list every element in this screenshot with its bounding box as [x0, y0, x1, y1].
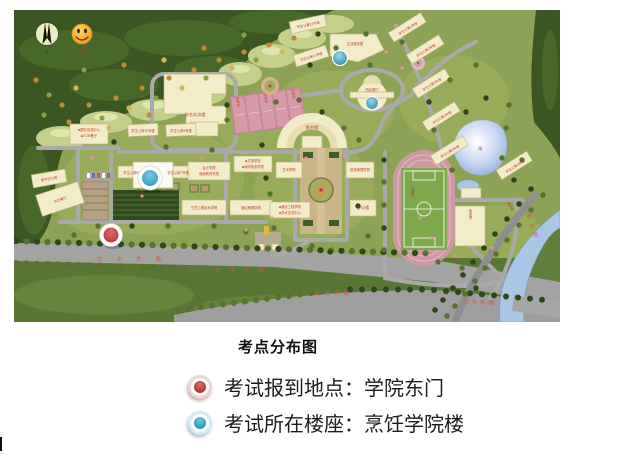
bus — [264, 226, 269, 235]
edge-artifact — [0, 437, 2, 451]
svg-text:正门: 正门 — [264, 247, 271, 252]
svg-text:■学术交流中心: ■学术交流中心 — [279, 210, 301, 215]
svg-text:■酒店工程学院: ■酒店工程学院 — [279, 204, 301, 209]
svg-text:旅游管理学院: 旅游管理学院 — [350, 167, 370, 172]
svg-text:N: N — [45, 49, 48, 54]
campus-map: 网球场 网球场 网球场 — [14, 10, 560, 322]
svg-text:学生公寓10号楼: 学生公寓10号楼 — [131, 128, 155, 133]
svg-text:体育馆: 体育馆 — [468, 208, 472, 220]
legend-title: 考点分布图 — [238, 336, 318, 357]
svg-text:综合实训楼: 综合实训楼 — [185, 111, 206, 118]
svg-text:酒店管理学院: 酒店管理学院 — [241, 205, 261, 210]
planting-field — [113, 190, 179, 220]
legend-row-checkin: 考试报到地点：学院东门 — [188, 372, 444, 401]
svg-text:生活服务楼: 生活服务楼 — [347, 41, 364, 46]
parking-lot — [82, 182, 108, 220]
svg-text:图书馆: 图书馆 — [306, 124, 319, 131]
svg-text:继续教育学院: 继续教育学院 — [199, 171, 219, 176]
svg-text:湖: 湖 — [478, 145, 482, 152]
svg-text:运动场: 运动场 — [410, 186, 414, 198]
legend-exam-building-marker-icon — [188, 411, 212, 435]
svg-text:办公楼: 办公楼 — [357, 204, 370, 211]
flower-circle — [261, 77, 279, 95]
gym-apron — [461, 188, 481, 198]
car-strip — [85, 171, 115, 181]
central-plaza — [300, 148, 342, 234]
svg-text:九水东路: 九水东路 — [315, 289, 353, 297]
svg-text:■休闲旅游学院: ■休闲旅游学院 — [242, 164, 264, 169]
stadium — [393, 150, 455, 266]
building-accounting — [188, 162, 230, 180]
legend-exam-building-label: 考试所在楼座：烹饪学院楼 — [224, 408, 464, 437]
legend-checkin-label: 考试报到地点：学院东门 — [224, 372, 444, 401]
legend-row-exam-building: 考试所在楼座：烹饪学院楼 — [188, 408, 464, 437]
svg-text:■文旅学院: ■文旅学院 — [245, 158, 261, 163]
campus-map-svg: 网球场 网球场 网球场 — [14, 10, 560, 322]
svg-text:学生公寓9号楼: 学生公寓9号楼 — [170, 128, 192, 133]
svg-text:所在位置: 所在位置 — [75, 48, 89, 53]
svg-text:会计学院: 会计学院 — [202, 165, 216, 170]
svg-text:学生公寓7号楼: 学生公寓7号楼 — [167, 170, 189, 175]
page: 网球场 网球场 网球场 — [0, 0, 622, 455]
svg-text:■COM餐厅: ■COM餐厅 — [81, 133, 98, 138]
svg-text:烹饪工程技术学院: 烹饪工程技术学院 — [191, 205, 218, 210]
legend-checkin-marker-icon — [188, 375, 212, 399]
svg-text:■国际交流中心: ■国际交流中心 — [78, 127, 100, 132]
svg-text:九水东路: 九水东路 — [215, 266, 273, 274]
svg-text:西区餐厅: 西区餐厅 — [365, 87, 379, 92]
svg-text:艺术学院: 艺术学院 — [282, 167, 296, 172]
svg-text:九水东路: 九水东路 — [97, 255, 175, 263]
